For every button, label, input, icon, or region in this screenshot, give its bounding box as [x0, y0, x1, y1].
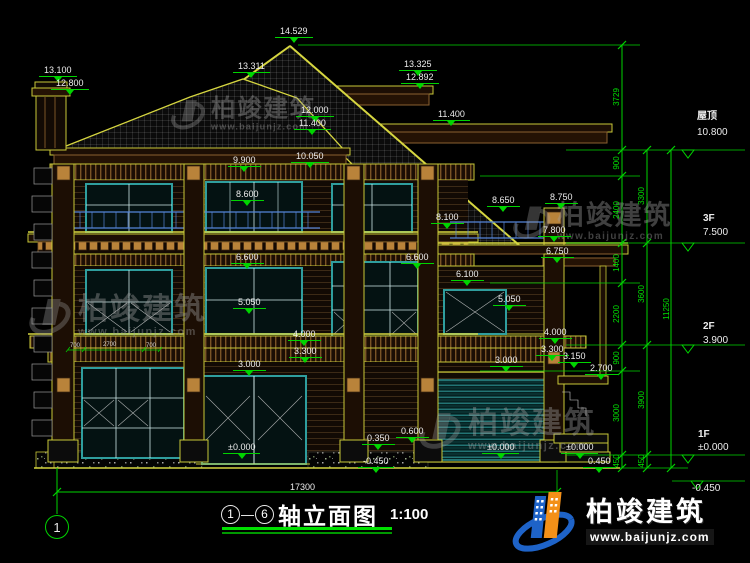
- drawing-title: 1 — 6 轴立面图 1:100: [221, 497, 428, 531]
- overall-width-dimension: 17300: [290, 482, 315, 492]
- title-underline: [222, 527, 392, 530]
- drawing-title-text: 轴立面图: [278, 497, 378, 531]
- brand-logo-text: 柏竣建筑: [586, 498, 714, 528]
- brand-logo: 柏竣建筑 www.baijunjz.com: [506, 488, 714, 556]
- axis-separator: —: [241, 507, 254, 522]
- cad-elevation-drawing: 13.10012.80014.52913.31113.32512.89212.0…: [0, 0, 750, 563]
- brand-logo-icon: [506, 488, 578, 556]
- elevation-linework: [0, 0, 750, 563]
- brand-logo-url: www.baijunjz.com: [586, 529, 714, 545]
- grid-bubble-1: 1: [45, 515, 69, 539]
- axis-circle-start: 1: [221, 505, 240, 524]
- quoins: [32, 168, 52, 436]
- entry-door: [196, 376, 310, 464]
- axis-circle-end: 6: [255, 505, 274, 524]
- chimney: [32, 82, 70, 150]
- terrace-pier: [544, 208, 564, 246]
- floor-band: [28, 334, 586, 348]
- drawing-scale: 1:100: [390, 506, 428, 523]
- title-underline: [222, 532, 392, 534]
- garage-door: [428, 372, 558, 462]
- first-floor-window: [82, 368, 184, 458]
- cornice-band: [28, 232, 478, 254]
